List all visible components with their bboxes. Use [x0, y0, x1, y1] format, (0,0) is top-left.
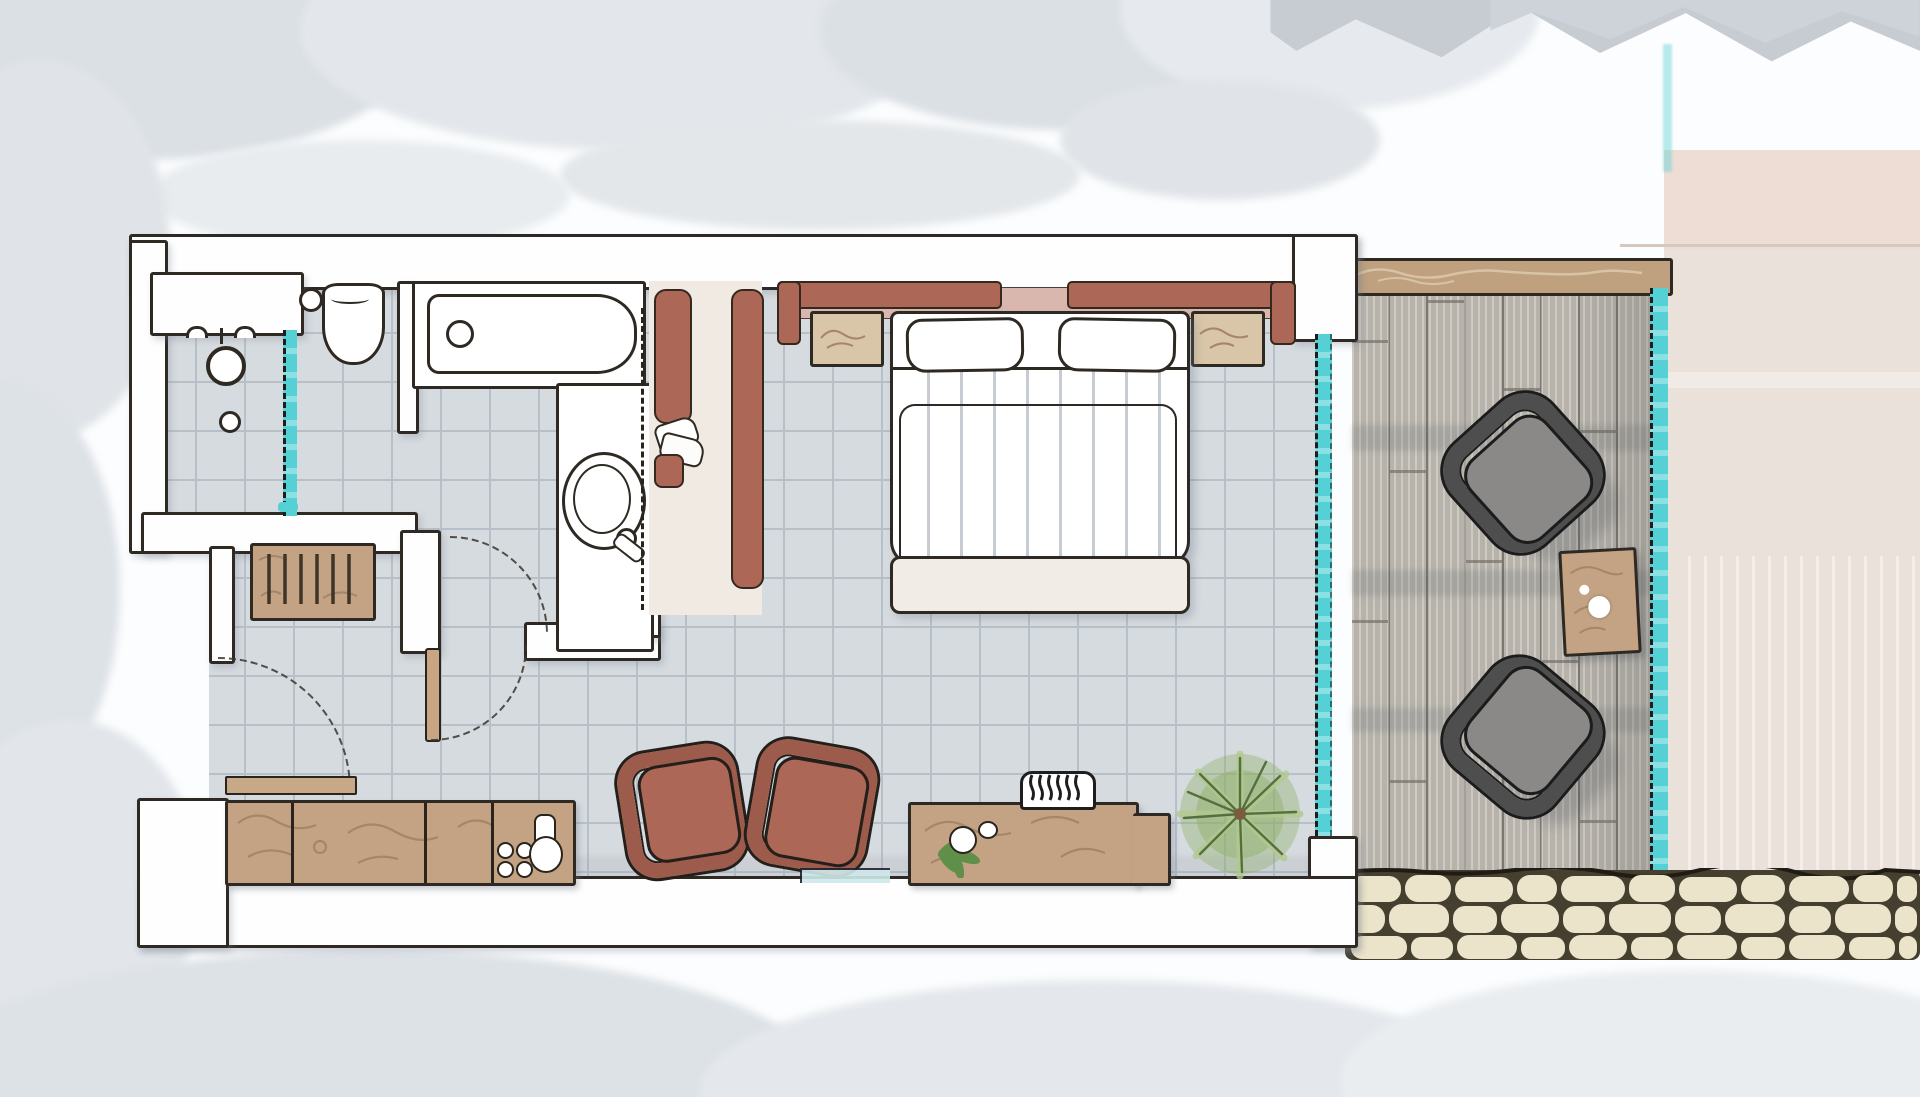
deck-plank-joint — [1390, 780, 1426, 783]
terrace-side-table — [1558, 547, 1641, 657]
potted-palm — [1168, 742, 1313, 887]
lounge-armchair — [613, 739, 751, 882]
watercolor-wash — [1340, 970, 1920, 1097]
deck-plank-joint — [1390, 470, 1426, 473]
neighbor-building-blush-band — [1664, 150, 1920, 250]
neighbor-building-siding — [1688, 556, 1920, 878]
terrace-glass-door — [1315, 334, 1332, 836]
toilet-bowl — [322, 283, 385, 365]
dry-stone-wall — [1345, 868, 1920, 963]
bed — [890, 311, 1190, 567]
shower-valve — [186, 326, 208, 338]
deck-plank-joint — [1542, 660, 1578, 663]
terrace-glass-balustrade — [1650, 288, 1668, 870]
shower-glass-end — [278, 502, 298, 512]
watercolor-wash — [1060, 80, 1380, 200]
deck-plank-joint — [1428, 300, 1464, 303]
shower-mixer — [220, 328, 223, 344]
wall-shower-top — [150, 272, 304, 336]
cup-small — [1579, 585, 1590, 596]
toilet-flush-button — [299, 288, 323, 312]
hallway-bench — [250, 543, 376, 621]
deck-plank-joint — [1580, 820, 1616, 823]
wall-hall-left — [209, 546, 235, 664]
kitchenette-sink — [529, 836, 563, 873]
watercolor-wash — [560, 120, 1080, 230]
wardrobe-panel-right — [731, 289, 764, 589]
striped-basket — [1020, 771, 1096, 810]
shower-valve — [234, 326, 256, 338]
desk-plant — [930, 818, 1010, 878]
wardrobe-panel-left — [654, 289, 692, 424]
wall-bottom-left-chunk — [137, 798, 229, 948]
nightstand-right — [1191, 311, 1265, 367]
glass-line-faint — [1663, 44, 1672, 172]
watercolor-wash — [0, 950, 820, 1097]
floor-plan — [0, 0, 1920, 1097]
bed-blanket-fold — [899, 404, 1177, 556]
wall-entry-upper — [400, 530, 441, 654]
headboard-bar-right — [1067, 281, 1296, 309]
shower-drain — [219, 411, 241, 433]
bathtub-faucet — [446, 320, 474, 348]
wall-right-top — [1292, 234, 1358, 342]
shower-glass-partition — [283, 330, 297, 516]
pergola-beam — [1345, 258, 1673, 296]
hallway-shelf — [225, 776, 357, 795]
wardrobe-panel-stub — [654, 454, 684, 488]
headboard-cap-right — [1270, 281, 1296, 345]
entry-door-leaf — [425, 648, 441, 742]
floor-vent — [800, 868, 890, 883]
neighbor-building-edge-line — [1620, 244, 1920, 247]
deck-plank-joint — [1466, 560, 1502, 563]
headboard-bar-left — [777, 281, 1002, 309]
deck-plank-joint — [1352, 620, 1388, 623]
shower-head — [206, 346, 246, 386]
bed-foot-bench — [890, 556, 1190, 614]
watercolor-mountains — [1490, 0, 1920, 75]
bed-pillow — [1058, 317, 1177, 373]
media-console-step — [1133, 813, 1171, 886]
lounge-armchair — [742, 735, 882, 880]
kitchenette-knob — [497, 842, 514, 859]
kitchenette-knob — [497, 861, 514, 878]
headboard-cap-left — [777, 281, 801, 345]
bed-pillow — [906, 317, 1025, 373]
wardrobe-sliding-track — [641, 308, 644, 610]
nightstand-left — [810, 311, 884, 367]
neighbor-building-light-band — [1664, 372, 1920, 388]
cup — [1588, 595, 1611, 618]
